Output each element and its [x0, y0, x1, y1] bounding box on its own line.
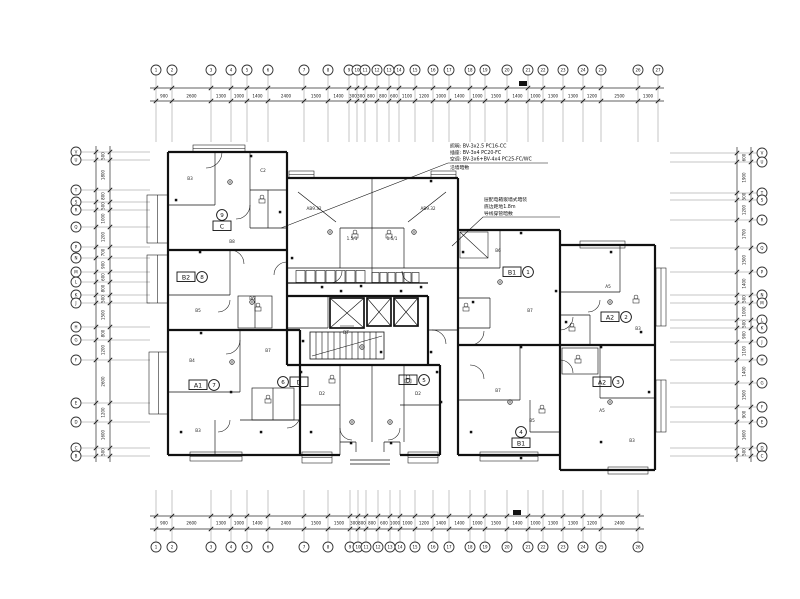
room-code: B3	[635, 326, 641, 331]
dim-value: 600	[101, 273, 106, 281]
dim-value: 1000	[472, 94, 483, 99]
wall-path	[168, 152, 655, 470]
grid-bubble-label: 5	[246, 545, 249, 550]
grid-bubble-label: U	[75, 158, 78, 163]
dim-value: 2400	[281, 521, 292, 526]
unit-number-label: 3	[616, 380, 620, 386]
unit-label: D5	[399, 375, 429, 386]
dim-value: 1500	[311, 94, 322, 99]
dim-value: 1100	[402, 94, 413, 99]
fixture	[463, 307, 469, 311]
marker	[519, 81, 527, 86]
socket-symbol	[310, 431, 313, 434]
note-line: 层配电箱嵌墙式暗装	[484, 196, 527, 203]
grid-bubble-label: 20	[504, 545, 510, 550]
dim-value: 1500	[742, 389, 747, 400]
fixture	[266, 395, 270, 399]
dim-value: 600	[742, 153, 747, 161]
grid-bubble-label: 9	[349, 545, 352, 550]
dim-value: 2400	[281, 94, 292, 99]
grid-bubble-label: 11	[362, 68, 368, 73]
dim-value: 1400	[454, 94, 465, 99]
notes-block-1: 照明: BV-3x2.5 PC16-CC 插座: BV-3x4 PC20-FC …	[450, 144, 532, 172]
unit-number-label: 8	[200, 275, 204, 281]
dim-value: 900	[101, 261, 106, 269]
unit-type-label: A2	[598, 379, 606, 386]
fixture	[329, 379, 335, 383]
socket-symbol	[472, 301, 475, 304]
room-code: B6	[495, 248, 501, 253]
dim-value: 300	[349, 94, 357, 99]
grid-bubble-label: 8	[327, 68, 330, 73]
dim-value: 900	[742, 331, 747, 339]
socket-symbol	[400, 290, 403, 293]
grid-bubble-label: 18	[467, 545, 473, 550]
grid-bubble-label: 10	[355, 545, 361, 550]
room-code: B7	[495, 388, 501, 393]
dim-value: 800	[101, 329, 106, 337]
dim-value: 1400	[742, 366, 747, 377]
unit-number-label: 5	[422, 378, 426, 384]
meter-box	[356, 271, 365, 283]
room-code: B7	[265, 348, 271, 353]
room-code: DT	[343, 330, 349, 335]
meter-box	[306, 271, 315, 283]
grid-bubble-label: 3	[210, 68, 213, 73]
dim-value: 1400	[512, 94, 523, 99]
grid-bubble-label: 19	[482, 68, 488, 73]
dim-value: 1000	[390, 521, 401, 526]
grid-bubble-label: 14	[397, 545, 403, 550]
dim-value: 500	[101, 202, 106, 210]
outer-walls	[168, 152, 655, 470]
unit-label: D6	[278, 377, 308, 388]
dim-value: 1300	[568, 521, 579, 526]
grid-bubble-label: 9	[348, 68, 351, 73]
socket-symbol	[462, 251, 465, 254]
grid-bubble-label: 21	[525, 68, 531, 73]
leader-1	[281, 163, 548, 228]
dim-value: 800	[368, 521, 376, 526]
grid-bubble-label: M	[74, 270, 78, 275]
unit-type-label: A1	[194, 382, 202, 389]
axis-grid: 1900226003130041000514006240071500814009…	[71, 65, 767, 552]
dim-value: 1500	[334, 521, 345, 526]
dim-value: 1300	[548, 94, 559, 99]
grid-bubble-label: 7	[303, 68, 306, 73]
dim-value: 1200	[101, 231, 106, 242]
bath-box	[562, 348, 598, 374]
grid-bubble-label: G	[74, 338, 77, 343]
socket-symbol	[648, 391, 651, 394]
grid-bubble-label: G	[760, 381, 763, 386]
room-code: C2	[260, 168, 266, 173]
unit-number-label: 1	[526, 270, 530, 276]
grid-bubble-label: 11	[363, 545, 369, 550]
dim-value: 1600	[101, 429, 106, 440]
dim-value: 700	[101, 248, 106, 256]
socket-symbol	[291, 257, 294, 260]
fixture	[259, 199, 265, 203]
dim-value: 500	[742, 320, 747, 328]
grid-bubble-label: 25	[598, 545, 604, 550]
dim-value: 1400	[333, 94, 344, 99]
dim-value: 1200	[101, 344, 106, 355]
dim-value: 1600	[742, 429, 747, 440]
dim-value: 900	[160, 94, 168, 99]
grid-bubble-label: U	[761, 160, 764, 165]
dim-value: 800	[379, 94, 387, 99]
grid-bubble-label: 5	[246, 68, 249, 73]
room-code: A5	[605, 284, 611, 289]
unit-type-label: D	[297, 379, 302, 386]
dim-value: 1200	[587, 94, 598, 99]
dim-value: 1400	[454, 521, 465, 526]
dim-value: 2600	[101, 376, 106, 387]
fixture	[569, 327, 575, 331]
fixture	[464, 303, 468, 307]
room-code: AB9.32	[306, 206, 321, 211]
socket-symbol	[610, 251, 613, 254]
grid-bubble-label: 17	[446, 68, 452, 73]
interior-walls	[168, 152, 655, 464]
socket-symbol	[230, 391, 233, 394]
floor-plan-drawing: 1900226003130041000514006240071500814009…	[0, 0, 800, 599]
staircase	[310, 332, 384, 359]
socket-symbol	[260, 431, 263, 434]
fixture	[539, 409, 545, 413]
grid-bubble-label: R	[75, 208, 78, 213]
unit-number-label: 4	[519, 430, 523, 436]
dim-value: 2500	[614, 94, 625, 99]
room-code: AB9.32	[420, 206, 435, 211]
socket-symbol	[470, 431, 473, 434]
socket-symbol	[300, 371, 303, 374]
meter-box	[380, 273, 387, 283]
unit-type-label: B1	[517, 440, 525, 447]
dim-value: 500	[101, 295, 106, 303]
grid-bubble-label: 8	[327, 545, 330, 550]
dim-value: 600	[390, 94, 398, 99]
unit-number-label: 7	[212, 383, 216, 389]
unit-label: B14	[512, 427, 530, 448]
fixture	[633, 299, 639, 303]
dim-value: 500	[101, 152, 106, 160]
grid-bubble-label: 1	[155, 68, 158, 73]
grid-bubble-label: 13	[387, 545, 393, 550]
grid-bubble-label: 6	[267, 68, 270, 73]
unit-type-label: B2	[182, 274, 190, 281]
dim-value: 2600	[186, 521, 197, 526]
grid-bubble-label: B	[75, 454, 78, 459]
meter-box	[296, 271, 305, 283]
unit-label: A17	[189, 380, 219, 391]
grid-bubble-label: 15	[412, 545, 418, 550]
floor-plan	[147, 81, 666, 515]
dim-value: 2600	[186, 94, 197, 99]
meter-box	[316, 271, 325, 283]
socket-symbol	[340, 290, 343, 293]
room-code: A5	[599, 408, 605, 413]
socket-symbol	[321, 286, 324, 289]
room-code: D2	[319, 391, 325, 396]
dim-value: 1300	[568, 94, 579, 99]
dim-value: 900	[160, 521, 168, 526]
socket-symbol	[520, 457, 523, 460]
dim-value: 900	[742, 410, 747, 418]
grid-bubble-label: S	[761, 198, 764, 203]
elevator-core	[330, 298, 418, 328]
grid-bubble-label: 7	[303, 545, 306, 550]
socket-symbol	[180, 431, 183, 434]
room-code: B7	[527, 308, 533, 313]
grid-bubble-label: 21	[525, 545, 531, 550]
grid-bubble-label: 15	[412, 68, 418, 73]
dim-value: 1000	[234, 94, 245, 99]
meter-box	[372, 273, 379, 283]
grid-bubble-label: 1	[155, 545, 158, 550]
dim-value: 1300	[216, 94, 227, 99]
socket-symbol	[520, 346, 523, 349]
meter-box	[326, 271, 335, 283]
grid-bubble-label: V	[75, 150, 78, 155]
dim-value: 1000	[101, 213, 106, 224]
grid-bubble-label: V	[761, 151, 764, 156]
socket-symbol	[360, 285, 363, 288]
socket-symbol	[640, 331, 643, 334]
dim-value: 300	[350, 521, 358, 526]
dim-value: 1300	[548, 521, 559, 526]
dim-value: 1000	[530, 521, 541, 526]
grid-bubble-label: C	[75, 446, 78, 451]
grid-bubble-label: 23	[560, 545, 566, 550]
dim-value: 1700	[742, 228, 747, 239]
grid-bubble-label: R	[761, 218, 764, 223]
bath-divider	[255, 296, 273, 420]
dim-value: 1200	[587, 521, 598, 526]
grid-bubble-label: 13	[386, 68, 392, 73]
unit-number-label: 6	[281, 380, 285, 386]
fixture	[256, 303, 260, 307]
stair-outline	[310, 332, 384, 359]
socket-symbol	[175, 199, 178, 202]
note-line: 空调: BV-3x6+BV-4x4 PC25-FC/WC	[450, 156, 532, 163]
grid-bubble-label: Q	[760, 246, 763, 251]
grid-bubble-label: C	[761, 454, 764, 459]
unit-label: A22	[601, 312, 631, 323]
grid-bubble-label: K	[761, 326, 764, 331]
dim-value: 1500	[311, 521, 322, 526]
grid-bubble-label: 12	[374, 68, 380, 73]
grid-bubble-label: J	[760, 340, 762, 345]
dim-value: 300	[357, 94, 365, 99]
socket-symbol	[250, 155, 253, 158]
fixture	[255, 307, 261, 311]
grid-bubble-label: 23	[560, 68, 566, 73]
socket-symbol	[199, 251, 202, 254]
room-code: B5	[195, 308, 201, 313]
grid-bubble-label: D	[760, 446, 763, 451]
grid-bubble-label: J	[74, 301, 76, 306]
unit-type-label: C	[220, 223, 225, 230]
unit-label: A23	[593, 377, 623, 388]
dim-value: 1500	[742, 254, 747, 265]
grid-bubble-label: 27	[655, 68, 661, 73]
dim-value: 800	[358, 521, 366, 526]
grid-bubble-label: 2	[171, 68, 174, 73]
dim-value: 1400	[512, 521, 523, 526]
grid-bubble-label: 4	[230, 68, 233, 73]
room-code: B4	[189, 358, 195, 363]
leader-lines	[281, 163, 560, 246]
note-line: 沿墙暗敷	[450, 164, 469, 171]
fixture	[330, 375, 334, 379]
room-code: B8	[229, 239, 235, 244]
room-code: B3	[629, 438, 635, 443]
grid-bubble-label: N	[75, 256, 78, 261]
unit-label: B28	[177, 272, 207, 283]
note-line: 导线穿管暗敷	[484, 210, 513, 217]
unit-number-label: 2	[624, 315, 628, 321]
grid-bubble-label: 6	[267, 545, 270, 550]
meter-box	[346, 271, 355, 283]
dim-value: 1900	[742, 172, 747, 183]
windows-balconies	[147, 145, 666, 474]
dim-value: 1400	[742, 278, 747, 289]
plan-canvas: 1900226003130041000514006240071500814009…	[0, 0, 800, 599]
fixture	[575, 359, 581, 363]
grid-bubble-label: D	[74, 420, 77, 425]
fixture	[387, 230, 391, 234]
socket-symbol	[600, 441, 603, 444]
grid-bubble-label: H	[760, 358, 763, 363]
grid-bubble-label: 26	[635, 545, 641, 550]
grid-bubble-label: 2	[171, 545, 174, 550]
dim-value: 1400	[252, 521, 263, 526]
grid-bubble-label: 19	[482, 545, 488, 550]
dim-value: 600	[380, 521, 388, 526]
socket-symbol	[302, 340, 305, 343]
room-code: B3	[195, 428, 201, 433]
grid-bubble-label: Q	[74, 225, 77, 230]
socket-symbol	[436, 371, 439, 374]
grid-bubble-label: 20	[504, 68, 510, 73]
dim-value: 1000	[742, 306, 747, 317]
dim-value: 1000	[472, 521, 483, 526]
marker	[513, 510, 521, 515]
dim-value: 1200	[101, 407, 106, 418]
grid-bubble-label: 16	[430, 545, 436, 550]
socket-symbol	[200, 332, 203, 335]
socket-symbol	[430, 351, 433, 354]
unit-type-label: A2	[606, 314, 614, 321]
socket-symbol	[380, 351, 383, 354]
room-code: D2	[415, 391, 421, 396]
socket-symbol	[520, 232, 523, 235]
grid-bubble-label: M	[760, 301, 764, 306]
labels-layer: C9B28A17D6D5B11A22A23B14B3C2B8AB9.32AB9.…	[175, 155, 651, 460]
unit-label: C9	[213, 210, 231, 231]
dim-value: 1000	[402, 521, 413, 526]
grid-bubble-label: 25	[598, 68, 604, 73]
dim-value: 1500	[491, 521, 502, 526]
room-code: B3	[187, 176, 193, 181]
socket-symbol	[430, 180, 433, 183]
grid-bubble-label: 22	[540, 68, 546, 73]
socket-symbol	[440, 401, 443, 404]
fixture	[576, 355, 580, 359]
dim-value: 1200	[419, 521, 430, 526]
socket-symbol	[600, 346, 603, 349]
unit-number-label: 9	[220, 213, 224, 219]
socket-symbol	[279, 211, 282, 214]
grid-bubble-label: 18	[467, 68, 473, 73]
grid-bubble-label: 12	[375, 545, 381, 550]
dim-value: 1400	[436, 521, 447, 526]
note-line: 底边距地1.8m	[484, 203, 516, 210]
socket-symbol	[565, 321, 568, 324]
note-line: 插座: BV-3x4 PC20-FC	[450, 149, 502, 156]
dim-value: 500	[742, 295, 747, 303]
grid-bubble-label: 3	[210, 545, 213, 550]
grid-bubble-label: S	[75, 200, 78, 205]
notes-block-2: 层配电箱嵌墙式暗装 底边距地1.8m 导线穿管暗敷	[484, 196, 527, 217]
socket-symbol	[420, 286, 423, 289]
fixture	[353, 230, 357, 234]
dim-value: 1500	[101, 309, 106, 320]
grid-bubble-label: 22	[540, 545, 546, 550]
dim-value: 1400	[252, 94, 263, 99]
dim-value: 500	[101, 448, 106, 456]
dim-value: 1300	[643, 94, 654, 99]
dim-value: 1000	[234, 521, 245, 526]
dim-value: 1000	[530, 94, 541, 99]
meter-box	[396, 273, 403, 283]
socket-symbol	[390, 442, 393, 445]
socket-symbol	[555, 290, 558, 293]
grid-bubble-label: N	[761, 293, 764, 298]
grid-bubble-label: T	[74, 188, 78, 193]
dim-value: 2400	[614, 521, 625, 526]
fixture	[260, 195, 264, 199]
grid-bubble-label: 17	[446, 545, 452, 550]
dim-value: 500	[742, 192, 747, 200]
unit-label: B11	[503, 267, 533, 278]
grid-bubble-label: 24	[580, 68, 586, 73]
stair-treads	[312, 332, 382, 359]
dim-value: 1300	[216, 521, 227, 526]
elevator-x-marks	[330, 298, 418, 328]
fixture	[265, 399, 271, 403]
dim-value: 1200	[419, 94, 430, 99]
room-code: B5	[529, 418, 535, 423]
grid-bubble-label: 14	[396, 68, 402, 73]
meter-box	[412, 273, 419, 283]
dim-value: 500	[742, 448, 747, 456]
dim-value: 1500	[491, 94, 502, 99]
dim-markers	[513, 81, 527, 515]
grid-bubble-label: 4	[230, 545, 233, 550]
dim-value: 1000	[436, 94, 447, 99]
dim-value: 800	[101, 192, 106, 200]
grid-bubble-label: 16	[430, 68, 436, 73]
dim-value: 1100	[742, 345, 747, 356]
grid-bubble-label: 10	[354, 68, 360, 73]
grid-bubble-label: K	[75, 293, 78, 298]
dim-value: 1800	[101, 169, 106, 180]
grid-bubble-label: 26	[635, 68, 641, 73]
note-line: 照明: BV-3x2.5 PC16-CC	[450, 144, 507, 150]
